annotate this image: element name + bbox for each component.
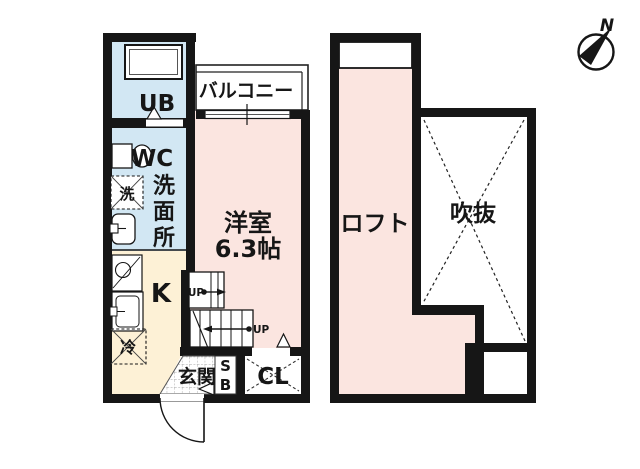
up-label-2: UP: [253, 324, 270, 336]
bathtub-icon: [125, 45, 182, 79]
entrance-label: 玄関: [178, 365, 216, 388]
western-room-size-label: 6.3帖: [215, 235, 282, 263]
up-label-1: UP: [188, 287, 205, 299]
void-label: 吹抜: [450, 200, 497, 227]
fridge-label: 冷: [120, 338, 136, 357]
washroom-label-2: 面: [153, 200, 175, 225]
floor-plan-drawing: バルコニー UB WC 洗 面 所 洗 洋室 6.3帖 K 冷 UP UP 玄関…: [0, 0, 640, 469]
washer-label: 洗: [119, 185, 134, 203]
plan-loft-floor: ロフト 吹抜: [330, 33, 536, 403]
ub-door-opening: [146, 120, 183, 127]
loft-window-icon: [339, 42, 412, 68]
western-room-label: 洋室: [224, 209, 272, 237]
closet-door-opening: [252, 348, 290, 356]
loft-storage-room: [484, 352, 527, 394]
floor-plan-page: バルコニー UB WC 洗 面 所 洗 洋室 6.3帖 K 冷 UP UP 玄関…: [0, 0, 640, 469]
compass-north-label: N: [600, 16, 614, 36]
closet-label: CL: [257, 364, 289, 390]
washroom-label-1: 洗: [153, 174, 175, 199]
kitchen-label: K: [151, 279, 172, 309]
balcony-label: バルコニー: [199, 80, 294, 102]
kitchen-sink-icon: [110, 255, 143, 331]
loft-label: ロフト: [341, 211, 410, 237]
washroom-label-3: 所: [153, 226, 175, 251]
compass: N: [579, 16, 615, 70]
entrance-door: [160, 394, 204, 442]
washbasin-icon: [110, 214, 135, 244]
plan-first-floor: バルコニー UB WC 洗 面 所 洗 洋室 6.3帖 K 冷 UP UP 玄関…: [103, 33, 310, 442]
unit-bath-label: UB: [139, 91, 175, 117]
toilet-label: WC: [131, 146, 173, 172]
shoebox-label-2: B: [220, 376, 231, 394]
shoebox-label-1: S: [220, 357, 231, 375]
